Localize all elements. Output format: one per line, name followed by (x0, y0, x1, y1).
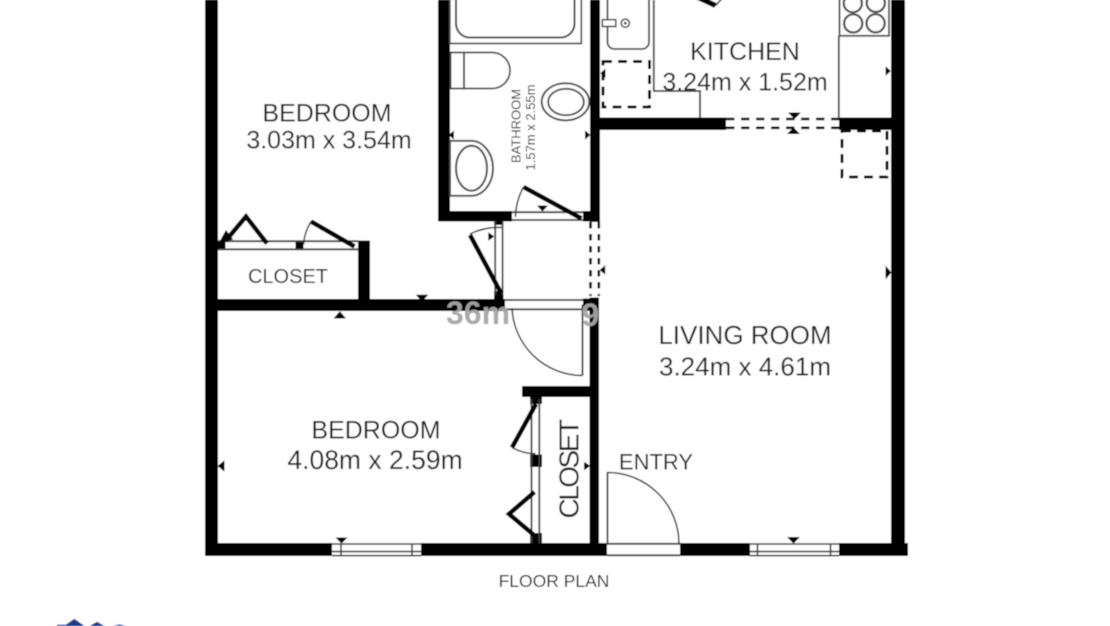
svg-text:36m: 36m (446, 295, 510, 331)
svg-text:BATHROOM: BATHROOM (509, 89, 524, 163)
svg-text:CLOSET: CLOSET (554, 419, 585, 518)
svg-text:3.24m x 1.52m: 3.24m x 1.52m (662, 69, 827, 97)
svg-text:KITCHEN: KITCHEN (690, 38, 800, 66)
svg-text:FLOOR PLAN: FLOOR PLAN (499, 571, 610, 591)
svg-text:BEDROOM: BEDROOM (262, 100, 391, 128)
svg-text:9: 9 (582, 297, 600, 333)
svg-text:1.57m x 2.55m: 1.57m x 2.55m (523, 85, 538, 171)
svg-text:4.08m x 2.59m: 4.08m x 2.59m (287, 445, 462, 475)
svg-text:ENTRY: ENTRY (619, 450, 693, 475)
svg-text:3.03m x 3.54m: 3.03m x 3.54m (246, 127, 411, 155)
svg-text:LIVING ROOM: LIVING ROOM (658, 320, 831, 350)
svg-text:CLOSET: CLOSET (248, 266, 328, 288)
svg-text:BEDROOM: BEDROOM (311, 417, 440, 445)
svg-text:3.24m x 4.61m: 3.24m x 4.61m (659, 352, 831, 382)
